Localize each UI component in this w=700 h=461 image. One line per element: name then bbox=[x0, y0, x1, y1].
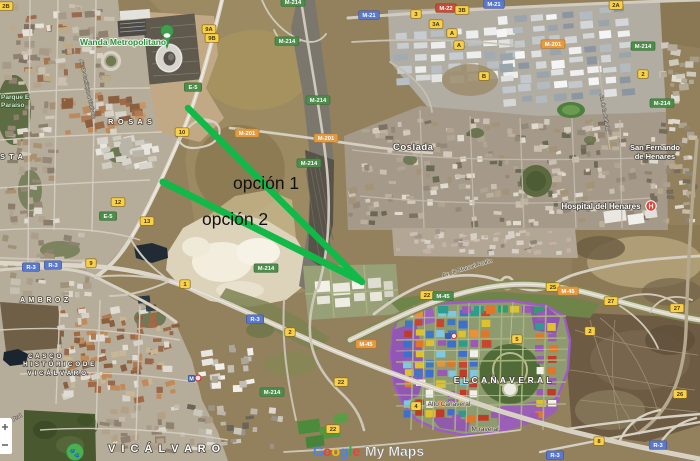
svg-text:M-21: M-21 bbox=[487, 2, 501, 8]
svg-text:M-45: M-45 bbox=[359, 342, 373, 348]
svg-text:M-214: M-214 bbox=[258, 266, 275, 272]
svg-text:R-3: R-3 bbox=[48, 263, 58, 269]
svg-text:R O S A S: R O S A S bbox=[108, 117, 153, 126]
svg-text:Parque E: Parque E bbox=[1, 94, 30, 101]
svg-text:V I C Á L V A R O: V I C Á L V A R O bbox=[28, 368, 87, 377]
svg-text:M-45: M-45 bbox=[436, 294, 450, 300]
svg-text:Hospital del Henares: Hospital del Henares bbox=[561, 202, 641, 211]
svg-text:22: 22 bbox=[424, 293, 430, 299]
svg-text:3A: 3A bbox=[432, 22, 440, 28]
svg-text:R-3: R-3 bbox=[550, 453, 560, 459]
svg-text:E-5: E-5 bbox=[188, 85, 198, 91]
svg-text:R-3: R-3 bbox=[26, 265, 36, 271]
svg-text:M-214: M-214 bbox=[285, 0, 302, 6]
svg-text:22: 22 bbox=[330, 427, 336, 433]
svg-text:Coslada: Coslada bbox=[393, 142, 434, 153]
svg-text:M-214: M-214 bbox=[310, 98, 327, 104]
svg-text:Paraíso: Paraíso bbox=[1, 102, 25, 109]
svg-text:2: 2 bbox=[641, 72, 644, 78]
svg-text:M-201: M-201 bbox=[545, 42, 562, 48]
svg-text:9B: 9B bbox=[208, 36, 215, 42]
svg-text:M: M bbox=[189, 377, 194, 383]
svg-text:M-22: M-22 bbox=[439, 6, 452, 12]
svg-text:9A: 9A bbox=[205, 27, 213, 33]
svg-text:A M B R O Z: A M B R O Z bbox=[20, 297, 69, 304]
svg-text:My Maps: My Maps bbox=[365, 443, 424, 459]
svg-text:M-21: M-21 bbox=[362, 13, 376, 19]
svg-text:V I C Á L V A R O: V I C Á L V A R O bbox=[108, 442, 222, 455]
svg-text:M-214: M-214 bbox=[635, 44, 652, 50]
svg-text:22: 22 bbox=[338, 380, 344, 386]
svg-text:M-214: M-214 bbox=[654, 101, 671, 107]
svg-text:26: 26 bbox=[677, 392, 684, 398]
svg-text:M raveral: M raveral bbox=[471, 426, 499, 433]
svg-text:C A S C O: C A S C O bbox=[28, 353, 62, 360]
svg-text:M-45: M-45 bbox=[561, 289, 575, 295]
svg-text:e: e bbox=[353, 443, 361, 459]
svg-text:13: 13 bbox=[144, 219, 151, 225]
svg-text:R-3: R-3 bbox=[250, 317, 260, 323]
svg-text:3B: 3B bbox=[458, 8, 465, 14]
svg-text:de Henares: de Henares bbox=[635, 152, 675, 161]
svg-text:2A: 2A bbox=[612, 3, 620, 9]
svg-text:o: o bbox=[323, 443, 332, 459]
svg-text:27: 27 bbox=[608, 299, 614, 305]
svg-text:H: H bbox=[648, 204, 653, 211]
svg-text:M-201: M-201 bbox=[318, 136, 335, 142]
svg-text:o: o bbox=[332, 443, 341, 459]
svg-text:M-214: M-214 bbox=[264, 390, 281, 396]
svg-text:San Fernando: San Fernando bbox=[630, 143, 680, 152]
svg-text:Alto Cañaveral: Alto Cañaveral bbox=[428, 401, 471, 408]
svg-text:g: g bbox=[340, 443, 349, 459]
svg-text:M-201: M-201 bbox=[239, 131, 256, 137]
svg-text:H I S T Ó R I C O D E: H I S T Ó R I C O D E bbox=[23, 359, 95, 368]
svg-text:12: 12 bbox=[115, 200, 121, 206]
svg-text:Wanda Metropolitano: Wanda Metropolitano bbox=[80, 37, 166, 47]
svg-text:E-5: E-5 bbox=[103, 214, 113, 220]
svg-text:2: 2 bbox=[288, 330, 291, 336]
svg-text:10: 10 bbox=[179, 130, 185, 136]
svg-text:🐾: 🐾 bbox=[69, 448, 80, 458]
svg-text:2: 2 bbox=[588, 329, 591, 335]
svg-text:27: 27 bbox=[674, 306, 680, 312]
svg-text:opción 1: opción 1 bbox=[233, 173, 299, 193]
svg-text:S T A: S T A bbox=[0, 152, 24, 161]
svg-text:M-214: M-214 bbox=[301, 161, 318, 167]
svg-text:E L C A Ñ A V E R A L: E L C A Ñ A V E R A L bbox=[454, 375, 552, 385]
svg-text:2B: 2B bbox=[2, 4, 9, 10]
svg-text:M-214: M-214 bbox=[279, 39, 296, 45]
svg-text:R-3: R-3 bbox=[653, 443, 663, 449]
svg-text:25: 25 bbox=[550, 285, 557, 291]
svg-text:opción 2: opción 2 bbox=[202, 209, 268, 229]
svg-text:B: B bbox=[482, 74, 486, 80]
